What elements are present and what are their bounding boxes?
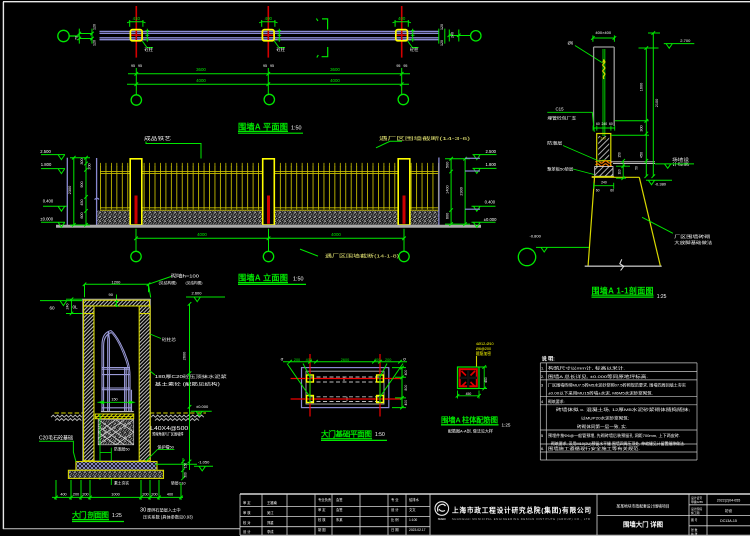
- svg-text:上海市政工程设计研究总院(集团)有限公司: 上海市政工程设计研究总院(集团)有限公司: [452, 505, 591, 514]
- svg-text:150: 150: [617, 152, 621, 158]
- svg-text:砼柱: 砼柱: [277, 46, 286, 53]
- svg-text:90: 90: [109, 292, 114, 297]
- svg-text:素土夯实: 素土夯实: [114, 480, 129, 485]
- svg-text:说 明:: 说 明:: [542, 355, 555, 362]
- svg-text:审 核: 审 核: [243, 510, 251, 515]
- svg-text:4000: 4000: [331, 232, 341, 237]
- svg-text:240: 240: [601, 137, 607, 141]
- svg-text:围墙A 1-1剖面图: 围墙A 1-1剖面图: [592, 286, 654, 296]
- svg-text:2.700: 2.700: [680, 38, 691, 43]
- svg-text:箍筋加密: 箍筋加密: [476, 351, 491, 356]
- svg-text:专 业: 专 业: [391, 497, 399, 502]
- svg-text:SHANGHAI MUNICIPAL ENGINEERING: SHANGHAI MUNICIPAL ENGINEERING DESIGN IN…: [452, 517, 590, 521]
- svg-text:300: 300: [184, 472, 188, 478]
- svg-text:1:25: 1:25: [112, 513, 122, 519]
- svg-text:400: 400: [60, 493, 66, 497]
- svg-text:共 张: 共 张: [691, 532, 698, 536]
- svg-text:180厚C20砼压顶抹水泥浆: 180厚C20砼压顶抹水泥浆: [155, 373, 228, 380]
- svg-text:(见结构图): (见结构图): [159, 280, 177, 285]
- svg-text:600: 600: [80, 212, 84, 218]
- svg-text:初设: 初设: [725, 508, 733, 513]
- svg-text:60: 60: [610, 189, 614, 193]
- svg-text:朱某: 朱某: [336, 517, 343, 522]
- svg-text:σ: σ: [403, 357, 406, 362]
- svg-text:比 例: 比 例: [391, 517, 399, 522]
- svg-text:-0.380: -0.380: [655, 182, 667, 187]
- svg-text:砼柱: 砼柱: [145, 46, 154, 53]
- svg-text:2.500: 2.500: [40, 149, 51, 154]
- svg-text:1:50: 1:50: [293, 277, 304, 283]
- svg-text:会签: 会签: [336, 507, 343, 512]
- svg-text:450: 450: [484, 377, 488, 383]
- svg-text:300: 300: [80, 158, 84, 164]
- svg-text:400: 400: [404, 370, 408, 376]
- svg-text:1:25: 1:25: [657, 294, 667, 300]
- svg-text:1.800: 1.800: [41, 162, 52, 167]
- svg-text:会签: 会签: [336, 497, 343, 502]
- svg-text:施工图: 施工图: [691, 511, 700, 515]
- svg-text:保护帽50: 保护帽50: [157, 444, 174, 450]
- svg-text:400: 400: [374, 358, 380, 362]
- svg-text:大门 剖面图: 大门 剖面图: [72, 510, 109, 520]
- svg-text:砌墙h=100: 砌墙h=100: [171, 272, 200, 279]
- svg-text:图 号: 图 号: [691, 518, 698, 522]
- svg-text:砖砌体同第一层一致, 实.: 砖砌体同第一层一致, 实.: [577, 424, 627, 429]
- svg-text:日 期: 日 期: [391, 527, 399, 532]
- svg-text:2.500: 2.500: [486, 149, 497, 154]
- svg-text:±0.00以下采用MU15砖墙±水泥, M6M5水泥砂浆砌筑: ±0.00以下采用MU15砖墙±水泥, M6M5水泥砂浆砌筑.: [548, 391, 653, 396]
- svg-text:防潮层: 防潮层: [547, 139, 562, 146]
- svg-text:400: 400: [404, 400, 408, 406]
- svg-text:200: 200: [142, 493, 148, 497]
- svg-text:围墙A 柱体配筋图: 围墙A 柱体配筋图: [441, 416, 498, 425]
- svg-text:60: 60: [596, 189, 600, 193]
- svg-text:制 图: 制 图: [318, 527, 326, 532]
- svg-text:防潮层50: 防潮层50: [114, 446, 130, 451]
- svg-text:400×400: 400×400: [595, 30, 611, 35]
- svg-text:校 核: 校 核: [318, 517, 326, 522]
- svg-text:2300: 2300: [459, 187, 463, 195]
- svg-text:450: 450: [466, 392, 472, 396]
- svg-text:甲级0255: 甲级0255: [691, 500, 703, 504]
- svg-text:±0.000: ±0.000: [196, 404, 209, 409]
- svg-text:聚苯板50垫层: 聚苯板50垫层: [547, 165, 573, 171]
- svg-text:95: 95: [270, 64, 274, 68]
- svg-text:厚碎石垫层入土中: 厚碎石垫层入土中: [147, 507, 181, 514]
- svg-text:410: 410: [133, 16, 141, 21]
- svg-text:以MUP20水泥砂浆砌筑;: 以MUP20水泥砂浆砌筑;: [581, 416, 629, 421]
- svg-text:70: 70: [75, 36, 79, 40]
- svg-text:砖墙体拟 c. 混凝土场, 12厚M5水泥砂浆砌体随捣随抹;: 砖墙体拟 c. 混凝土场, 12厚M5水泥砂浆砌体随捣随抹;: [556, 407, 690, 412]
- svg-text:60: 60: [596, 122, 600, 126]
- svg-text:1600: 1600: [640, 83, 644, 91]
- svg-text:设 计: 设 计: [243, 529, 251, 534]
- svg-text:200: 200: [82, 493, 88, 497]
- svg-text:2022(2)04-055: 2022(2)04-055: [717, 499, 741, 503]
- svg-text:李成: 李成: [267, 529, 274, 534]
- svg-text:200: 200: [73, 493, 79, 497]
- svg-text:L40X4@500: L40X4@500: [150, 426, 188, 432]
- svg-text:郑重: 郑重: [267, 520, 274, 525]
- svg-text:厂区围墙砖砌MU7.5砖M5水泥砂浆砌07.5砖砌规范要求,: 厂区围墙砖砌MU7.5砖M5水泥砂浆砌07.5砖砌规范要求, 围墙四周回填土夯实: [548, 383, 686, 388]
- svg-text:900: 900: [80, 181, 84, 187]
- svg-text:SMEDI: SMEDI: [438, 517, 446, 521]
- svg-text:大门基础平面图: 大门基础平面图: [321, 429, 372, 439]
- svg-text:预埋角钢与厂区围墙焊: 预埋角钢与厂区围墙焊: [152, 431, 183, 436]
- svg-text:200: 200: [385, 358, 391, 362]
- svg-text:3: 3: [541, 383, 543, 388]
- svg-text:240: 240: [65, 304, 69, 310]
- svg-text:C20毛石砼基础: C20毛石砼基础: [39, 434, 73, 442]
- svg-text:150: 150: [184, 463, 188, 469]
- svg-text:1000: 1000: [111, 493, 119, 497]
- svg-text:4Ø12-Ø10: 4Ø12-Ø10: [476, 342, 494, 346]
- svg-text:240: 240: [601, 181, 607, 185]
- svg-text:1:50: 1:50: [291, 126, 302, 132]
- svg-text:400: 400: [265, 16, 273, 21]
- svg-text:审 定: 审 定: [318, 507, 326, 512]
- svg-text:120: 120: [440, 40, 444, 46]
- svg-text:0.400: 0.400: [485, 199, 496, 204]
- svg-text:1:25: 1:25: [502, 423, 511, 428]
- svg-text:±0.000: ±0.000: [484, 217, 497, 222]
- svg-text:设 计: 设 计: [391, 507, 399, 512]
- svg-text:大放脚基础做法: 大放脚基础做法: [674, 239, 712, 245]
- svg-text:σ: σ: [281, 357, 284, 362]
- svg-text:3600: 3600: [330, 67, 340, 72]
- svg-text:50: 50: [635, 166, 639, 170]
- svg-text:3600: 3600: [196, 67, 206, 72]
- svg-text:1:100: 1:100: [409, 518, 417, 522]
- svg-text:120: 120: [93, 40, 97, 46]
- svg-text:60: 60: [609, 122, 613, 126]
- svg-text:400: 400: [398, 16, 406, 21]
- svg-text:围墙A 平面图: 围墙A 平面图: [238, 122, 288, 132]
- svg-text:专业负责: 专业负责: [318, 497, 332, 502]
- svg-text:450: 450: [640, 152, 644, 158]
- svg-text:5: 5: [541, 433, 543, 438]
- svg-text:审 定: 审 定: [243, 500, 251, 505]
- svg-text:围墙大门 详图: 围墙大门 详图: [623, 519, 663, 528]
- svg-text:围墙A 立面图: 围墙A 立面图: [238, 273, 288, 283]
- svg-text:500: 500: [445, 162, 449, 168]
- svg-text:(见结构图): (见结构图): [186, 280, 203, 285]
- svg-text:800: 800: [404, 385, 408, 391]
- svg-text:2600: 2600: [341, 358, 349, 362]
- svg-text:30: 30: [140, 508, 146, 514]
- svg-text:配筋图A-A剖, 做法见大样: 配筋图A-A剖, 做法见大样: [448, 428, 493, 434]
- svg-text:王福南: 王福南: [267, 500, 278, 505]
- svg-text:600: 600: [445, 213, 449, 219]
- svg-text:0L: 0L: [73, 305, 79, 310]
- svg-text:某某地块市政配套设计围墙项目: 某某地块市政配套设计围墙项目: [616, 503, 669, 508]
- svg-text:200: 200: [88, 163, 92, 169]
- svg-text:95: 95: [396, 64, 400, 68]
- svg-text:4000: 4000: [330, 78, 340, 83]
- svg-text:Ø6@200: Ø6@200: [476, 347, 491, 351]
- svg-text:4000: 4000: [196, 78, 206, 83]
- svg-text:60: 60: [50, 306, 56, 311]
- svg-text:2023.02.17: 2023.02.17: [409, 528, 426, 532]
- svg-text:2.600: 2.600: [192, 291, 203, 296]
- svg-text:150: 150: [111, 397, 117, 401]
- svg-text:1.800: 1.800: [486, 162, 497, 167]
- svg-text:4000: 4000: [197, 232, 207, 237]
- svg-text:砼柱: 砼柱: [410, 46, 419, 53]
- svg-text:2.: 2.: [541, 374, 544, 379]
- svg-text:95: 95: [138, 64, 142, 68]
- svg-text:埋管砼包厂支: 埋管砼包厂支: [547, 115, 576, 121]
- svg-text:遇厂区围墙截断(14-1-8): 遇厂区围墙截断(14-1-8): [325, 253, 400, 260]
- svg-text:厂区围墙砖砌: 厂区围墙砖砌: [674, 233, 710, 239]
- svg-text:400: 400: [167, 493, 173, 497]
- svg-text:垫层C10: 垫层C10: [171, 480, 186, 485]
- svg-text:场地设: 场地设: [672, 157, 689, 162]
- svg-text:文文: 文文: [409, 507, 416, 512]
- svg-text:校 对: 校 对: [243, 520, 251, 525]
- svg-text:95: 95: [131, 64, 135, 68]
- svg-text:300: 300: [640, 125, 644, 131]
- svg-text:-1.050: -1.050: [198, 460, 210, 465]
- svg-text:吴江: 吴江: [267, 510, 274, 515]
- svg-text:120: 120: [93, 24, 97, 30]
- svg-text:0.400: 0.400: [43, 199, 54, 204]
- svg-text:压实系数 (具体参数见0.93): 压实系数 (具体参数见0.93): [143, 514, 193, 521]
- svg-text:200: 200: [294, 358, 300, 362]
- svg-text:400: 400: [306, 358, 312, 362]
- svg-text:450: 450: [80, 199, 84, 205]
- svg-text:C15: C15: [556, 107, 565, 112]
- svg-text:1.: 1.: [541, 366, 544, 371]
- svg-text:砌筑要求:: 砌筑要求:: [548, 399, 565, 404]
- svg-text:95: 95: [403, 64, 407, 68]
- svg-text:2300: 2300: [68, 186, 72, 194]
- svg-text:95: 95: [263, 64, 267, 68]
- svg-text:240: 240: [602, 122, 608, 126]
- svg-text:2600: 2600: [183, 352, 187, 360]
- svg-text:240: 240: [451, 32, 455, 38]
- svg-text:预埋件按Φ6@一般管预埋, 先砌砖墙后装预留孔 洞距700m: 预埋件按Φ6@一般管预埋, 先砌砖墙后装预留孔 洞距700mm, 上下两皮砖.: [548, 433, 680, 438]
- svg-text:1400: 1400: [445, 185, 449, 193]
- svg-text:2100: 2100: [655, 99, 659, 107]
- svg-text:6.: 6.: [541, 446, 544, 451]
- svg-text:1:50: 1:50: [375, 432, 385, 438]
- svg-text:围墙A 总长详见, ±0.000等同原地坪标高.: 围墙A 总长详见, ±0.000等同原地坪标高.: [548, 374, 648, 379]
- svg-text:±0.000: ±0.000: [40, 216, 53, 221]
- svg-text:砼柱芯: 砼柱芯: [162, 336, 176, 342]
- svg-text:DC13A-15: DC13A-15: [720, 519, 737, 523]
- svg-text:构筑尺寸以mm计, 标高以米计.: 构筑尺寸以mm计, 标高以米计.: [548, 366, 625, 371]
- svg-text:-0.800: -0.800: [530, 233, 542, 238]
- svg-text:基土素砼 (配筋见结构): 基土素砼 (配筋见结构): [155, 381, 221, 388]
- svg-text:围墙施工遵循现行安全施工等有关规范.: 围墙施工遵循现行安全施工等有关规范.: [548, 446, 640, 451]
- svg-text:Ø6: Ø6: [568, 40, 574, 45]
- svg-text:110: 110: [617, 169, 621, 174]
- svg-text:给排水: 给排水: [409, 497, 420, 502]
- svg-text:200: 200: [151, 493, 157, 497]
- svg-text:成品铁艺: 成品铁艺: [144, 135, 172, 142]
- svg-text:120: 120: [440, 24, 444, 30]
